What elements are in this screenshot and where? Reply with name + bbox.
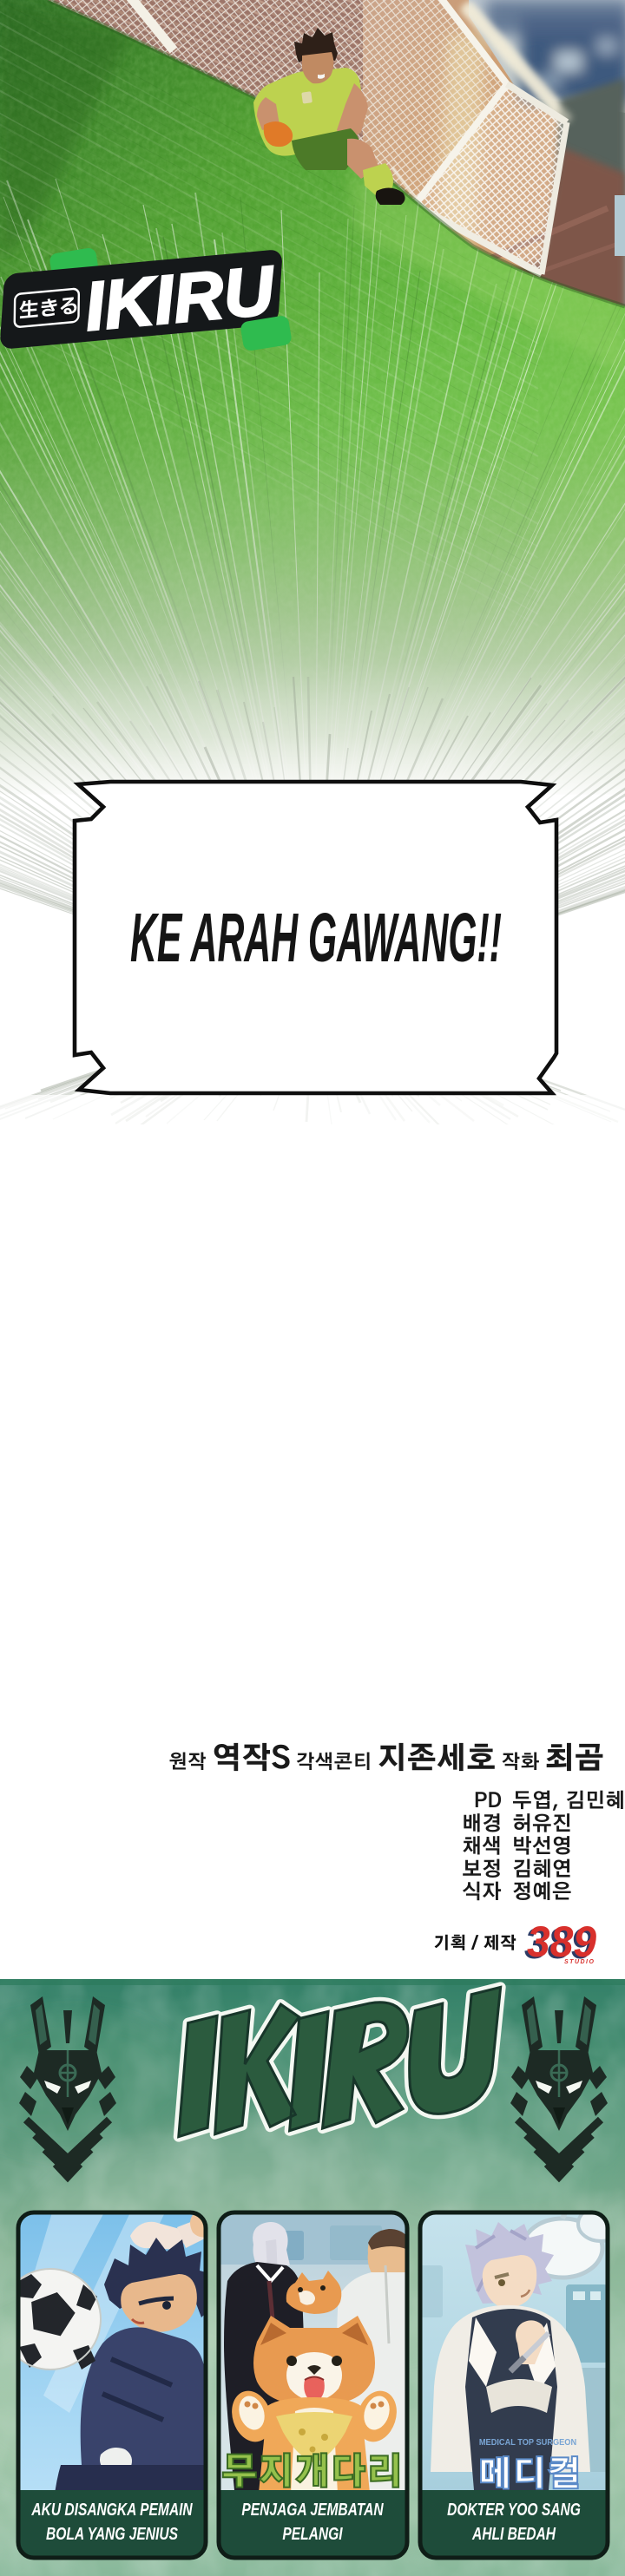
svg-text:PELANGI: PELANGI — [282, 2524, 343, 2544]
svg-text:KE ARAH GAWANG!!: KE ARAH GAWANG!! — [130, 899, 502, 976]
svg-text:AHLI BEDAH: AHLI BEDAH — [471, 2524, 556, 2544]
svg-text:MEDICAL TOP SURGEON: MEDICAL TOP SURGEON — [479, 2438, 576, 2448]
svg-text:DOKTER YOO SANG: DOKTER YOO SANG — [447, 2500, 581, 2520]
svg-text:STUDIO: STUDIO — [564, 1959, 595, 1965]
svg-text:PENJAGA JEMBATAN: PENJAGA JEMBATAN — [241, 2500, 384, 2520]
svg-text:AKU DISANGKA PEMAIN: AKU DISANGKA PEMAIN — [30, 2500, 193, 2520]
svg-text:BOLA YANG JENIUS: BOLA YANG JENIUS — [46, 2524, 178, 2544]
